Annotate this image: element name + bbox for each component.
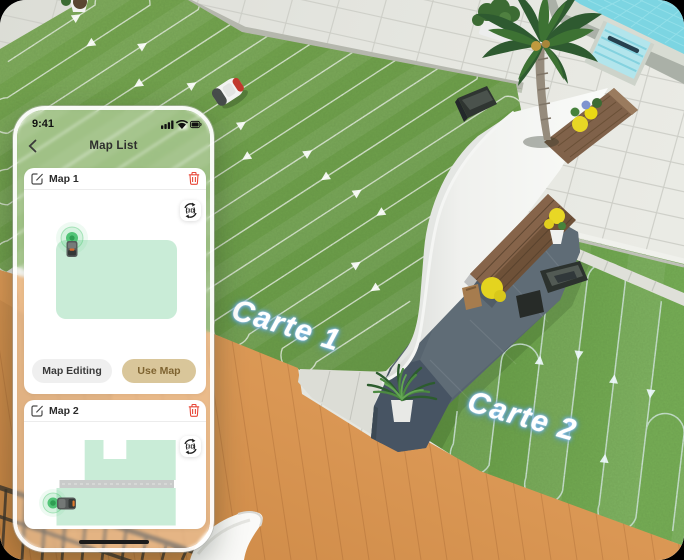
svg-text:3D: 3D: [187, 209, 194, 215]
